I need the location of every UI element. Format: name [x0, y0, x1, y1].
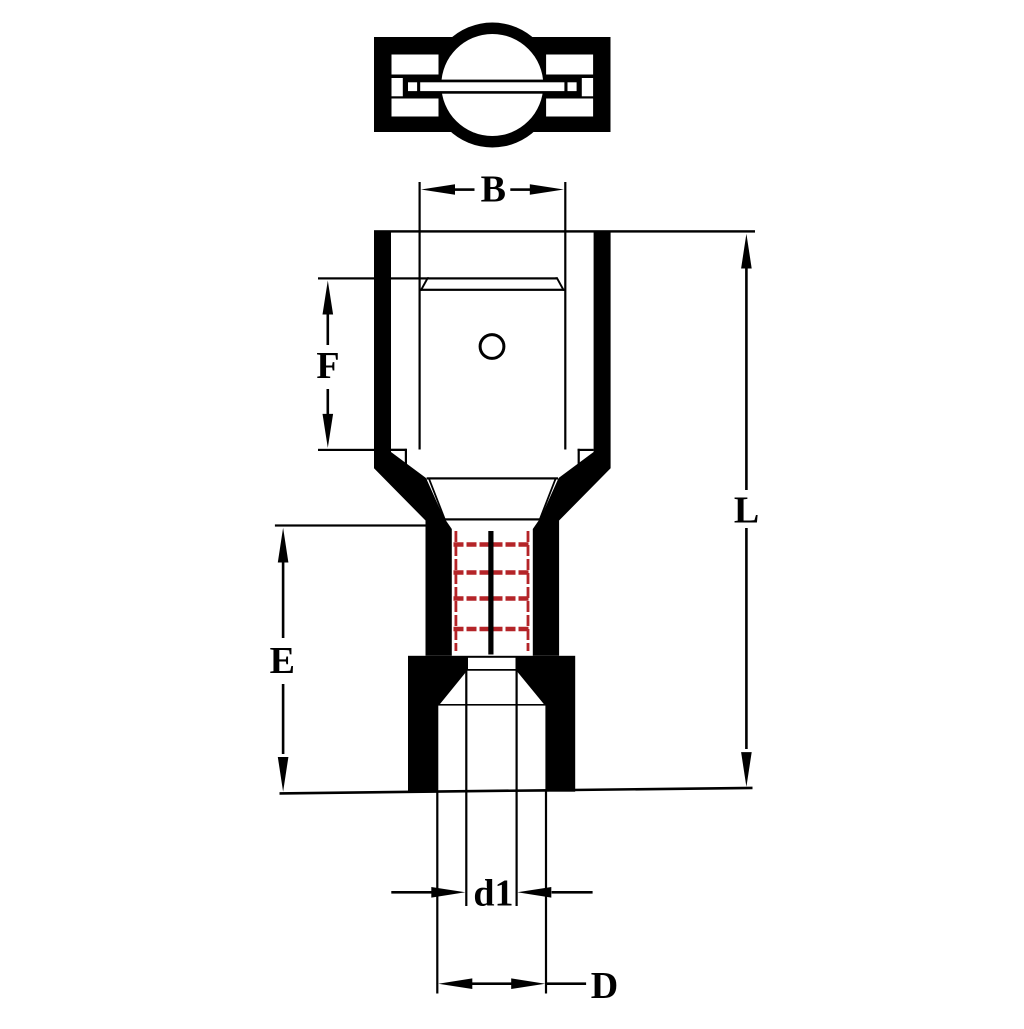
- svg-text:d1: d1: [473, 873, 513, 915]
- svg-text:E: E: [270, 640, 295, 682]
- svg-text:B: B: [481, 169, 506, 211]
- svg-text:L: L: [734, 490, 759, 532]
- svg-text:F: F: [316, 345, 339, 387]
- svg-text:D: D: [591, 965, 618, 1007]
